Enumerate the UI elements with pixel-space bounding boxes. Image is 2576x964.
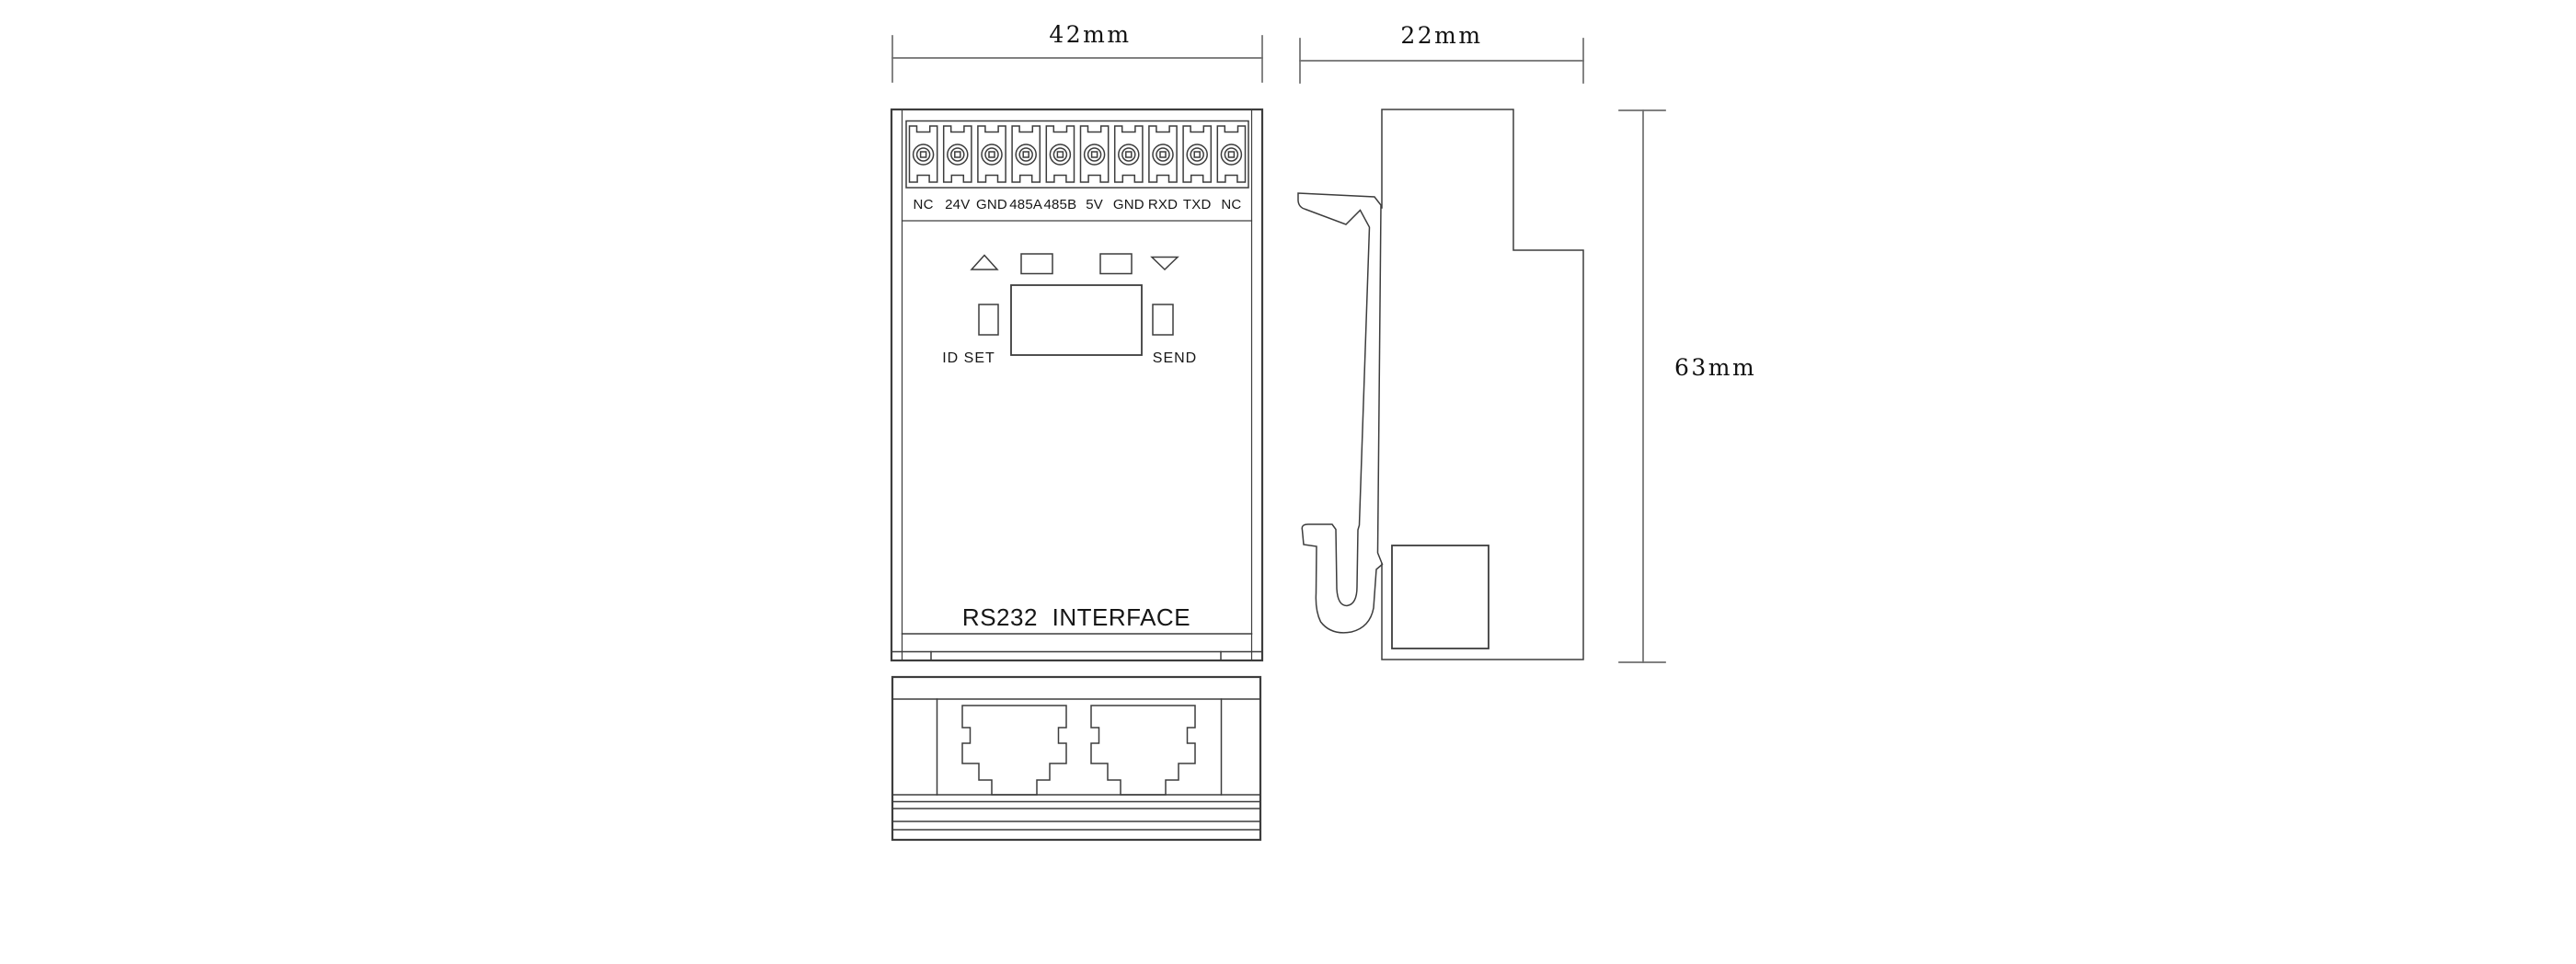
terminal-screw-slot-icon xyxy=(1092,152,1098,157)
terminal-screw-slot-icon xyxy=(1194,152,1200,157)
terminal-screw-icon xyxy=(917,148,930,161)
terminal-screw-icon xyxy=(951,148,964,161)
dimension-front-width: 42mm xyxy=(892,21,1262,82)
terminal-label: GND xyxy=(1113,197,1144,212)
terminal-screw-icon xyxy=(1053,148,1066,161)
terminal-label: 485A xyxy=(1009,197,1042,212)
send-indicator xyxy=(1153,304,1173,335)
terminal-label: 5V xyxy=(1086,197,1103,212)
terminal-screw-icon xyxy=(985,148,998,161)
dimension-label-front-width: 42mm xyxy=(1049,21,1131,48)
panel-button-left xyxy=(1021,254,1052,274)
dimension-side-width: 22mm xyxy=(1300,22,1583,83)
id-set-label: ID SET xyxy=(942,350,995,366)
dimension-side-height: 63mm xyxy=(1619,110,1756,662)
terminal-label: 24V xyxy=(945,197,970,212)
terminal-block xyxy=(906,121,1248,189)
din-rail-clip xyxy=(1298,193,1383,633)
terminal-screw-slot-icon xyxy=(1160,152,1166,157)
terminal-screw-slot-icon xyxy=(1057,152,1063,157)
terminal-label: NC xyxy=(914,197,934,212)
terminal-screw-slot-icon xyxy=(1126,152,1132,157)
terminal-screw-icon xyxy=(1156,148,1169,161)
terminal-screw-slot-icon xyxy=(1023,152,1029,157)
technical-drawing-canvas: 42mm 22mm 63mm NC24VGND485A485B5VGNDRXDT… xyxy=(0,0,2576,964)
send-label: SEND xyxy=(1153,350,1197,366)
terminal-screw-icon xyxy=(1225,148,1237,161)
terminal-screw-slot-icon xyxy=(1228,152,1234,157)
terminal-screw-icon xyxy=(1122,148,1135,161)
terminal-label: NC xyxy=(1221,197,1241,212)
panel-label: RS232 INTERFACE xyxy=(962,603,1190,631)
terminal-screw-slot-icon xyxy=(921,152,926,157)
down-triangle-icon xyxy=(1152,258,1178,270)
side-view xyxy=(1298,109,1583,660)
technical-drawing-page: 42mm 22mm 63mm NC24VGND485A485B5VGNDRXDT… xyxy=(0,0,2576,964)
dimension-label-side-height: 63mm xyxy=(1674,354,1756,381)
terminal-label: 485B xyxy=(1043,197,1076,212)
front-outline xyxy=(891,109,1262,660)
rj45-port-right xyxy=(1091,706,1195,795)
bottom-view xyxy=(892,677,1260,840)
terminal-label: TXD xyxy=(1183,197,1212,212)
side-body-outline xyxy=(1382,109,1583,660)
terminal-screw-icon xyxy=(1190,148,1203,161)
terminal-screw-slot-icon xyxy=(955,152,960,157)
dimension-label-side-width: 22mm xyxy=(1400,22,1482,49)
terminal-label: RXD xyxy=(1148,197,1178,212)
up-triangle-icon xyxy=(972,256,997,270)
bottom-outline xyxy=(892,677,1260,840)
terminal-label: GND xyxy=(976,197,1007,212)
terminal-cells xyxy=(910,126,1246,182)
side-inner-square xyxy=(1392,545,1489,648)
terminal-screw-slot-icon xyxy=(989,152,995,157)
front-view: NC24VGND485A485B5VGNDRXDTXDNC ID SET SEN… xyxy=(891,109,1262,660)
terminal-screw-icon xyxy=(1019,148,1032,161)
lcd-display xyxy=(1011,285,1142,355)
panel-button-right xyxy=(1100,254,1132,274)
terminal-screw-icon xyxy=(1088,148,1101,161)
id-set-indicator xyxy=(979,304,998,335)
terminal-labels: NC24VGND485A485B5VGNDRXDTXDNC xyxy=(914,197,1242,212)
rj45-port-left xyxy=(962,706,1066,795)
